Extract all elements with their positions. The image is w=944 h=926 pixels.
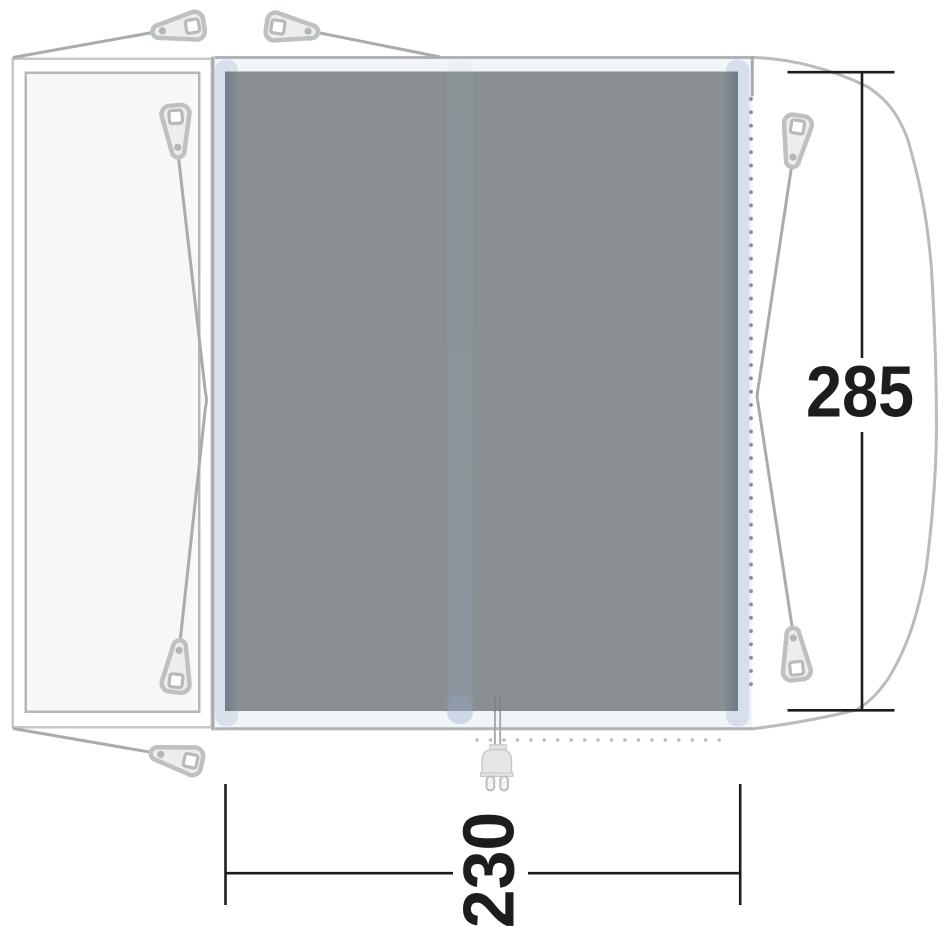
svg-text:230: 230: [450, 812, 530, 926]
svg-text:285: 285: [806, 352, 914, 433]
